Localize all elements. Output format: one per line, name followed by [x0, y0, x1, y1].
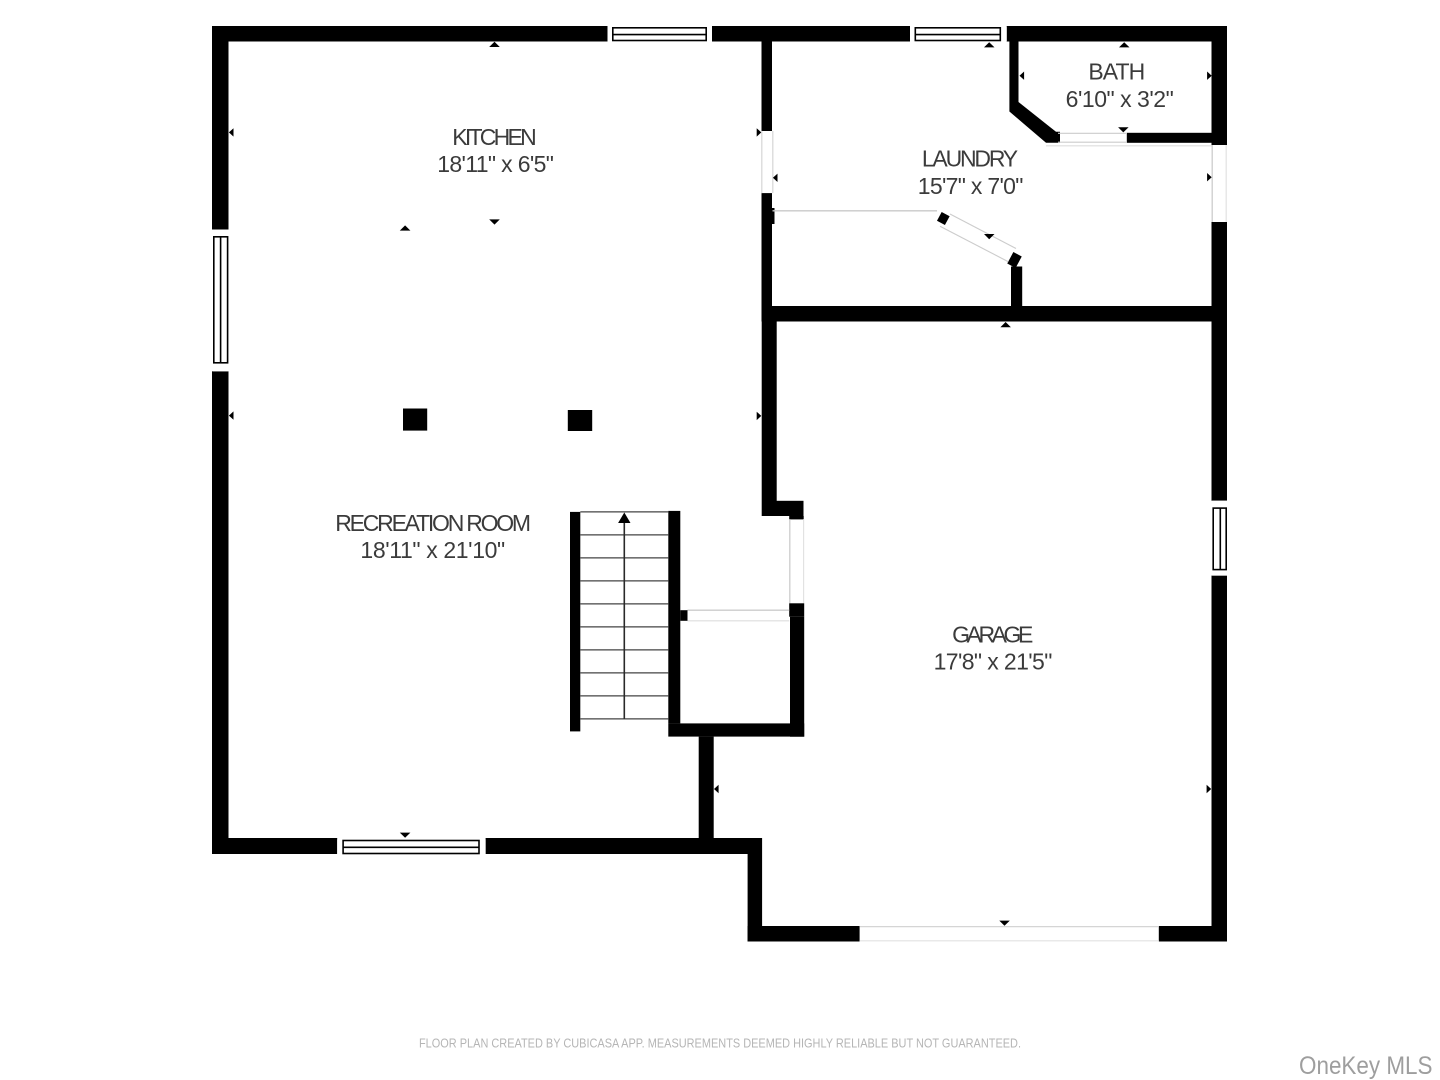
- svg-text:OneKey MLS: OneKey MLS: [1299, 1052, 1433, 1080]
- svg-text:LAUNDRY: LAUNDRY: [922, 146, 1018, 172]
- svg-text:FLOOR PLAN CREATED BY CUBICASA: FLOOR PLAN CREATED BY CUBICASA APP. MEAS…: [419, 1036, 1021, 1051]
- svg-text:KITCHEN: KITCHEN: [452, 124, 536, 150]
- svg-text:RECREATION ROOM: RECREATION ROOM: [335, 510, 531, 536]
- svg-text:18'11" x 6'5": 18'11" x 6'5": [437, 151, 554, 177]
- svg-text:GARAGE: GARAGE: [952, 622, 1033, 648]
- svg-text:18'11" x 21'10": 18'11" x 21'10": [360, 537, 505, 563]
- svg-text:15'7" x 7'0": 15'7" x 7'0": [918, 173, 1024, 199]
- svg-text:17'8" x 21'5": 17'8" x 21'5": [934, 649, 1053, 675]
- svg-text:6'10" x 3'2": 6'10" x 3'2": [1066, 86, 1174, 112]
- svg-text:BATH: BATH: [1088, 59, 1145, 85]
